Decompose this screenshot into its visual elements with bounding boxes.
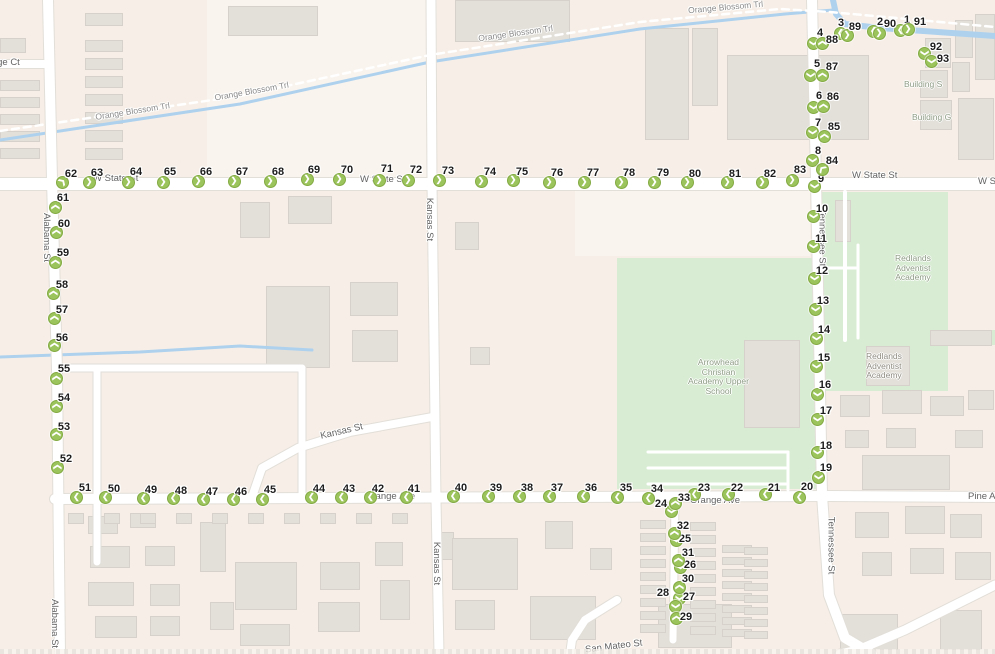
route-marker-number: 90 <box>884 18 896 30</box>
route-marker-number: 53 <box>58 421 70 433</box>
direction-arrow-icon: ❯ <box>814 474 822 481</box>
direction-arrow-icon: ❯ <box>614 493 621 501</box>
route-marker-number: 63 <box>91 167 103 179</box>
route-marker-number: 88 <box>826 34 838 46</box>
direction-arrow-icon: ❯ <box>304 175 311 183</box>
direction-arrow-icon: ❯ <box>789 176 796 184</box>
route-marker-number: 3 <box>838 17 844 29</box>
route-marker-number: 44 <box>313 483 325 495</box>
route-marker-number: 38 <box>521 482 533 494</box>
direction-arrow-icon: ❯ <box>51 259 59 266</box>
route-marker-number: 93 <box>937 53 949 65</box>
route-marker-number: 48 <box>175 485 187 497</box>
route-marker-number: 12 <box>816 265 828 277</box>
direction-arrow-icon: ❯ <box>806 72 814 79</box>
route-marker-number: 84 <box>826 155 838 167</box>
route-marker-number: 30 <box>682 573 694 585</box>
direction-arrow-icon: ❯ <box>672 615 680 622</box>
route-marker-number: 79 <box>657 167 669 179</box>
route-marker-number: 35 <box>620 482 632 494</box>
route-marker[interactable]: ❯ <box>373 174 386 187</box>
route-marker-number: 82 <box>764 168 776 180</box>
direction-arrow-icon: ❯ <box>808 129 816 136</box>
route-marker-number: 37 <box>551 482 563 494</box>
route-marker-number: 19 <box>820 462 832 474</box>
direction-arrow-icon: ❯ <box>809 104 817 111</box>
route-marker-number: 66 <box>200 166 212 178</box>
direction-arrow-icon: ❯ <box>73 493 80 501</box>
route-marker-number: 52 <box>60 453 72 465</box>
route-marker-number: 17 <box>820 405 832 417</box>
direction-arrow-icon: ❯ <box>86 178 93 186</box>
direction-arrow-icon: ❯ <box>125 178 132 186</box>
route-marker-number: 57 <box>56 304 68 316</box>
route-marker-number: 36 <box>585 482 597 494</box>
route-marker-number: 34 <box>651 483 663 495</box>
direction-arrow-icon: ❯ <box>645 494 652 502</box>
direction-arrow-icon: ❯ <box>818 40 826 47</box>
direction-arrow-icon: ❯ <box>231 177 238 185</box>
route-marker-number: 73 <box>442 165 454 177</box>
direction-arrow-icon: ❯ <box>820 133 828 140</box>
direction-arrow-icon: ❯ <box>267 177 274 185</box>
direction-arrow-icon: ❯ <box>436 176 443 184</box>
route-marker-number: 55 <box>58 363 70 375</box>
route-marker-number: 49 <box>145 484 157 496</box>
route-marker-number: 21 <box>768 482 780 494</box>
route-marker-number: 31 <box>682 547 694 559</box>
route-marker-number: 69 <box>308 164 320 176</box>
direction-arrow-icon: ❯ <box>813 391 821 398</box>
route-marker-number: 29 <box>680 611 692 623</box>
direction-arrow-icon: ❯ <box>796 493 803 501</box>
direction-arrow-icon: ❯ <box>808 157 816 164</box>
route-marker-number: 91 <box>914 16 926 28</box>
route-marker-number: 67 <box>236 166 248 178</box>
route-marker-number: 39 <box>490 482 502 494</box>
direction-arrow-icon: ❯ <box>651 178 658 186</box>
direction-arrow-icon: ❯ <box>581 178 588 186</box>
route-marker-number: 41 <box>408 483 420 495</box>
route-marker-number: 75 <box>516 166 528 178</box>
route-marker-number: 64 <box>130 166 142 178</box>
route-marker-number: 14 <box>818 324 830 336</box>
route-marker-number: 22 <box>731 482 743 494</box>
direction-arrow-icon: ❯ <box>478 177 485 185</box>
route-marker-number: 81 <box>729 168 741 180</box>
route-marker-number: 11 <box>815 233 827 245</box>
route-marker-number: 77 <box>587 167 599 179</box>
route-marker-number: 10 <box>816 203 828 215</box>
route-marker[interactable]: ❯ <box>804 69 817 82</box>
route-marker-number: 47 <box>206 486 218 498</box>
route-marker-number: 42 <box>372 483 384 495</box>
route-marker-number: 92 <box>930 41 942 53</box>
route-marker-number: 24 <box>655 498 667 510</box>
route-marker-number: 59 <box>57 247 69 259</box>
route-marker-number: 85 <box>828 121 840 133</box>
direction-arrow-icon: ❯ <box>818 72 826 79</box>
direction-arrow-icon: ❯ <box>376 176 383 184</box>
route-marker-number: 43 <box>343 483 355 495</box>
route-marker-number: 26 <box>684 559 696 571</box>
route-marker-number: 27 <box>683 591 695 603</box>
direction-arrow-icon: ❯ <box>671 603 679 610</box>
route-marker-number: 20 <box>801 481 813 493</box>
route-marker-number: 7 <box>815 117 821 129</box>
route-marker-number: 74 <box>484 166 496 178</box>
route-marker-number: 70 <box>341 164 353 176</box>
direction-arrow-icon: ❯ <box>618 178 625 186</box>
route-marker-number: 18 <box>820 440 832 452</box>
route-marker-number: 61 <box>57 192 69 204</box>
route-marker-number: 25 <box>679 533 691 545</box>
route-marker-number: 33 <box>678 492 690 504</box>
route-marker-number: 86 <box>827 91 839 103</box>
route-marker-number: 56 <box>56 332 68 344</box>
route-marker-number: 13 <box>817 295 829 307</box>
route-marker-number: 50 <box>108 483 120 495</box>
route-marker-number: 32 <box>677 520 689 532</box>
route-marker-number: 83 <box>794 164 806 176</box>
direction-arrow-icon: ❯ <box>927 58 935 65</box>
route-marker-number: 71 <box>381 163 393 175</box>
direction-arrow-icon: ❯ <box>691 490 698 498</box>
route-marker-number: 8 <box>815 145 821 157</box>
route-marker-number: 28 <box>657 587 669 599</box>
route-marker-number: 87 <box>826 61 838 73</box>
direction-arrow-icon: ❯ <box>259 495 266 503</box>
direction-arrow-icon: ❯ <box>876 29 883 37</box>
direction-arrow-icon: ❯ <box>405 176 412 184</box>
route-marker-number: 68 <box>272 166 284 178</box>
route-marker-number: 80 <box>689 168 701 180</box>
route-marker-number: 72 <box>410 164 422 176</box>
route-markers-layer: ❯1❯2❯3❯4❯5❯6❯7❯8❯9❯10❯11❯12❯13❯14❯15❯16❯… <box>0 0 995 654</box>
route-marker-number: 60 <box>58 218 70 230</box>
route-marker-number: 76 <box>551 167 563 179</box>
route-marker[interactable]: ❯ <box>902 23 915 36</box>
direction-arrow-icon: ❯ <box>160 178 167 186</box>
route-marker-number: 15 <box>818 352 830 364</box>
direction-arrow-icon: ❯ <box>336 175 343 183</box>
route-marker-number: 65 <box>164 166 176 178</box>
direction-arrow-icon: ❯ <box>819 103 827 110</box>
route-marker-number: 45 <box>264 484 276 496</box>
route-marker-number: 40 <box>455 482 467 494</box>
direction-arrow-icon: ❯ <box>51 204 59 211</box>
route-marker-number: 16 <box>819 379 831 391</box>
route-marker[interactable]: ❯ <box>925 55 938 68</box>
route-marker-number: 54 <box>58 392 70 404</box>
direction-arrow-icon: ❯ <box>546 178 553 186</box>
map-tile-edge <box>0 649 995 654</box>
direction-arrow-icon: ❯ <box>674 557 682 564</box>
direction-arrow-icon: ❯ <box>810 183 818 190</box>
route-marker-number: 62 <box>65 168 77 180</box>
route-marker-number: 46 <box>235 486 247 498</box>
route-marker-number: 89 <box>849 21 861 33</box>
direction-arrow-icon: ❯ <box>195 177 202 185</box>
route-marker-number: 58 <box>56 279 68 291</box>
direction-arrow-icon: ❯ <box>905 25 912 33</box>
direction-arrow-icon: ❯ <box>52 375 60 382</box>
route-marker-number: 23 <box>698 482 710 494</box>
route-marker-number: 51 <box>79 482 91 494</box>
map-canvas[interactable]: Orange Ct Orange Blossom Trl Orange Blos… <box>0 0 995 654</box>
route-marker-number: 5 <box>814 58 820 70</box>
route-marker-number: 78 <box>623 167 635 179</box>
